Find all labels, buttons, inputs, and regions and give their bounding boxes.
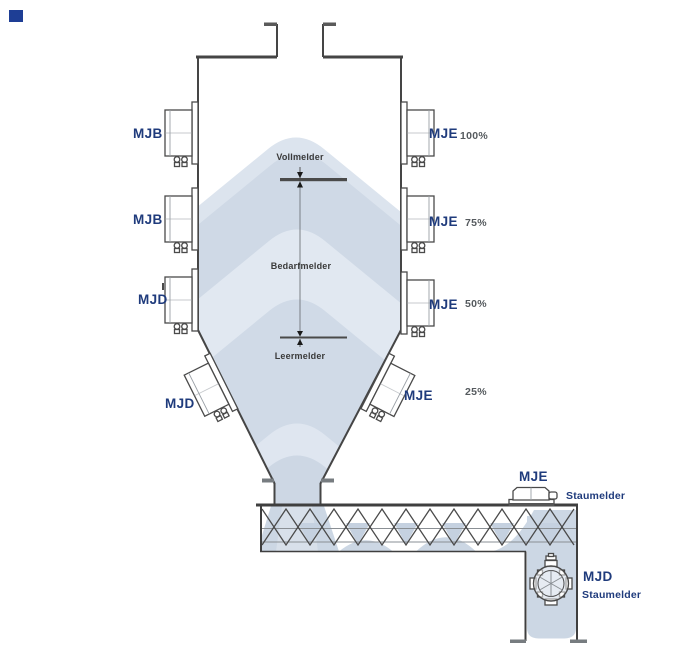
sensor-label-mjb-2: MJB — [133, 213, 163, 227]
level-percent-100: 100% — [460, 131, 488, 142]
annotation-vollmelder: Vollmelder — [270, 153, 330, 162]
sensor-mjd-1-body — [165, 269, 198, 334]
sensor-label-mjb-1: MJB — [133, 127, 163, 141]
annotation-bedarfmelder: Bedarfmelder — [266, 262, 336, 271]
sensor-label-mjd-1: MJD — [138, 293, 168, 307]
sensor-label-mje-2: MJE — [429, 215, 458, 229]
sensor-mjb-1-body — [165, 102, 198, 167]
discharge-sensor-type: Staumelder — [582, 590, 641, 601]
sensor-label-mjd-2: MJD — [165, 397, 195, 411]
discharge-sensor-label: MJD — [583, 570, 613, 584]
silo-diagram — [0, 0, 700, 667]
sensor-mjb-2-body — [165, 188, 198, 253]
sensor-label-mje-4: MJE — [404, 389, 433, 403]
sensor-label-mje-1: MJE — [429, 127, 458, 141]
level-percent-75: 75% — [465, 218, 487, 229]
sensor-label-mje-3: MJE — [429, 298, 458, 312]
silo-diagram-canvas: MJB MJB MJD MJD MJE 100% MJE 75% MJE 50%… — [0, 0, 700, 667]
level-percent-25: 25% — [465, 387, 487, 398]
level-percent-50: 50% — [465, 299, 487, 310]
conveyor-sensor-label: MJE — [519, 470, 548, 484]
conveyor-sensor-type: Staumelder — [566, 491, 625, 502]
annotation-leermelder: Leermelder — [270, 352, 330, 361]
mjd-tick-mark — [162, 283, 164, 290]
conveyor-sensor-body — [509, 488, 557, 507]
